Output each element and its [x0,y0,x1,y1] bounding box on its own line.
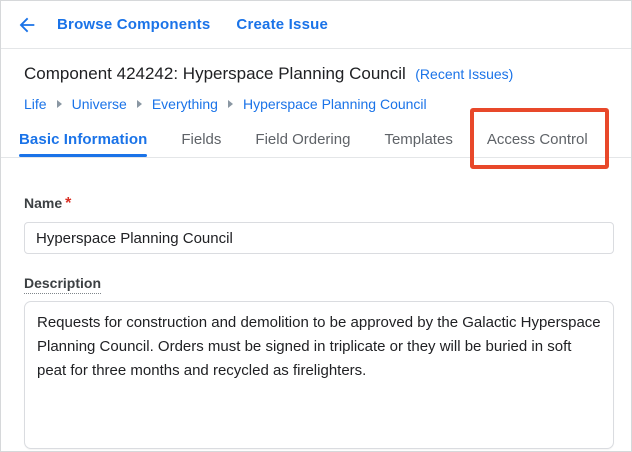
description-label-row: Description [24,275,612,294]
tab-basic-information[interactable]: Basic Information [19,121,147,157]
breadcrumb: Life Universe Everything Hyperspace Plan… [24,95,631,113]
create-issue-link[interactable]: Create Issue [236,16,328,33]
chevron-right-icon [137,100,142,108]
description-field-label: Description [24,275,101,294]
tab-templates[interactable]: Templates [384,121,452,157]
tab-access-control[interactable]: Access Control [487,121,588,157]
chevron-right-icon [228,100,233,108]
breadcrumb-item-everything[interactable]: Everything [152,95,218,113]
title-row: Component 424242: Hyperspace Planning Co… [24,62,611,87]
breadcrumb-item-universe[interactable]: Universe [72,95,127,113]
basic-information-form: Name* Description Requests for construct… [1,195,631,449]
required-asterisk: * [65,195,71,212]
header-bar: Browse Components Create Issue [1,1,631,49]
arrow-left-icon [16,14,38,36]
back-button[interactable] [15,13,39,37]
name-label-row: Name* [24,195,612,213]
tab-field-ordering[interactable]: Field Ordering [255,121,350,157]
tab-access-control-label: Access Control [487,131,588,148]
tab-fields[interactable]: Fields [181,121,221,157]
page-title: Component 424242: Hyperspace Planning Co… [24,64,406,83]
component-edit-page: Browse Components Create Issue Component… [0,0,632,452]
description-textarea[interactable]: Requests for construction and demolition… [24,301,614,449]
chevron-right-icon [57,100,62,108]
breadcrumb-item-hyperspace-planning-council[interactable]: Hyperspace Planning Council [243,95,427,113]
browse-components-link[interactable]: Browse Components [57,16,210,33]
name-field-label: Name [24,195,62,211]
breadcrumb-item-life[interactable]: Life [24,95,47,113]
recent-issues-link[interactable]: (Recent Issues) [415,66,513,82]
name-input[interactable] [24,222,614,254]
tab-bar: Basic Information Fields Field Ordering … [1,121,631,158]
